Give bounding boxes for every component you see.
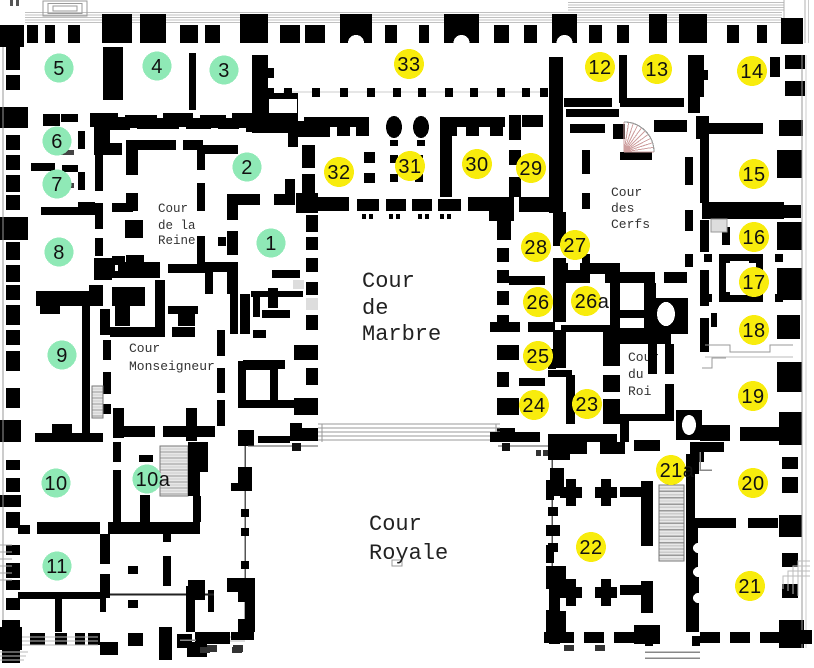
svg-text:33: 33 [397,54,420,76]
svg-text:11: 11 [46,556,68,578]
svg-text:2: 2 [241,157,253,179]
svg-text:26: 26 [526,292,549,314]
svg-text:Cour: Cour [369,512,422,537]
svg-text:27: 27 [563,235,586,257]
svg-text:9: 9 [56,345,68,367]
svg-text:28: 28 [524,237,547,259]
svg-text:17: 17 [742,272,765,294]
svg-text:3: 3 [218,60,230,82]
svg-text:15: 15 [742,164,765,186]
svg-text:7: 7 [51,174,63,196]
svg-text:de la: de la [158,219,196,233]
svg-text:8: 8 [53,242,65,264]
svg-text:du: du [628,367,644,382]
svg-text:Cour: Cour [362,269,415,294]
svg-text:Cour: Cour [158,202,188,216]
svg-text:6: 6 [51,131,63,153]
svg-text:24: 24 [522,395,545,417]
svg-text:16: 16 [742,227,765,249]
svg-text:25: 25 [526,346,549,368]
svg-text:14: 14 [740,61,763,83]
svg-text:Marbre: Marbre [362,322,441,347]
svg-text:Cour: Cour [611,185,642,200]
svg-text:32: 32 [327,162,350,184]
svg-text:des: des [611,201,634,216]
svg-text:26a: 26a [575,291,610,313]
svg-text:12: 12 [588,57,611,79]
svg-text:31: 31 [398,156,421,178]
svg-text:5: 5 [53,58,65,80]
svg-text:19: 19 [741,386,764,408]
svg-text:10a: 10a [136,469,171,491]
svg-text:4: 4 [151,56,163,78]
svg-text:Monseigneur: Monseigneur [129,359,215,374]
svg-text:21: 21 [738,576,761,598]
svg-text:Reine: Reine [158,234,196,248]
svg-text:29: 29 [519,158,542,180]
svg-text:13: 13 [645,59,668,81]
svg-text:18: 18 [742,320,765,342]
svg-text:Royale: Royale [369,541,448,566]
svg-text:de: de [362,296,388,321]
svg-text:1: 1 [265,233,277,255]
svg-text:21a: 21a [660,460,695,482]
svg-text:Cour: Cour [129,341,160,356]
svg-text:23: 23 [575,394,598,416]
svg-text:Cerfs: Cerfs [611,217,650,232]
svg-text:30: 30 [465,154,488,176]
svg-text:20: 20 [741,473,764,495]
svg-text:Roi: Roi [628,384,652,399]
svg-text:10: 10 [44,473,67,495]
svg-text:22: 22 [579,537,602,559]
